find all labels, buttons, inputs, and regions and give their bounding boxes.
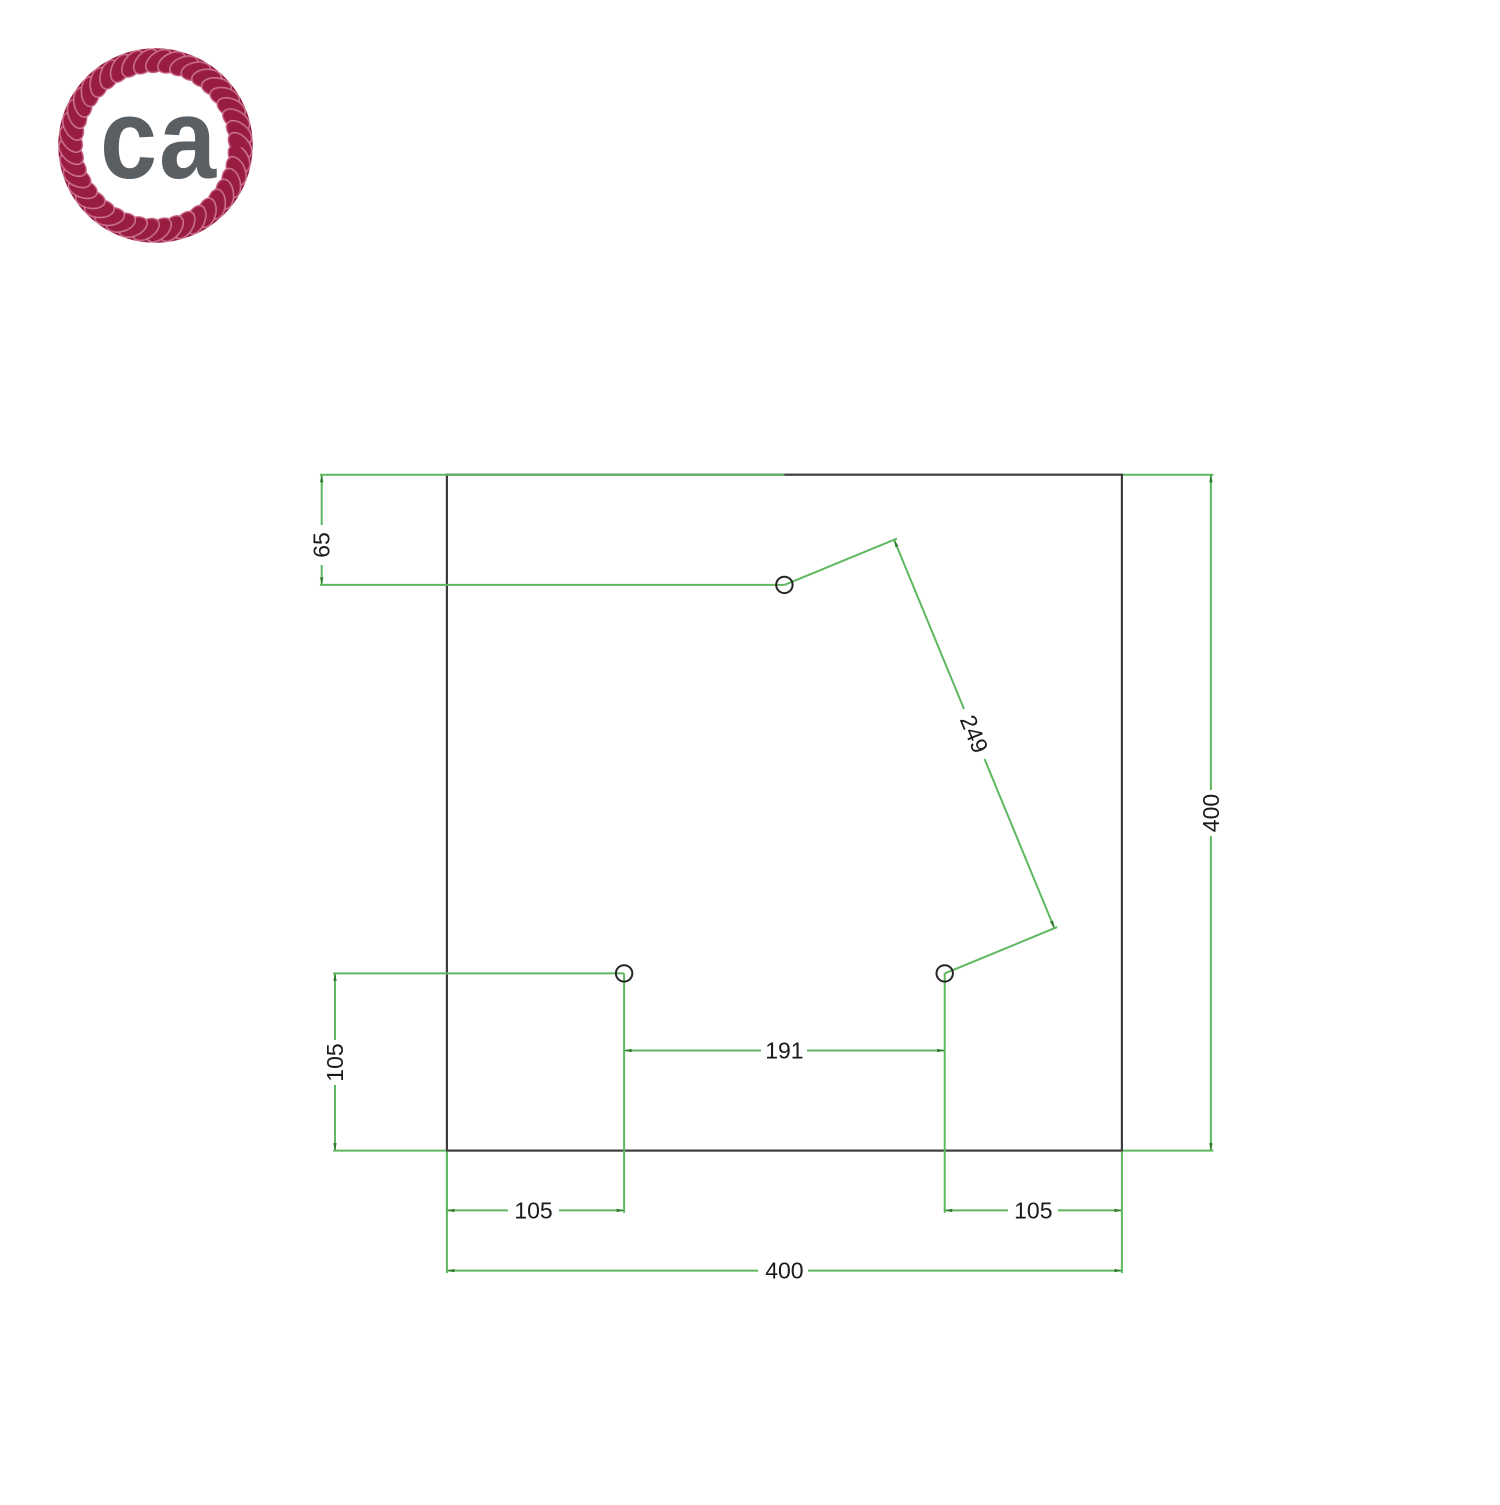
svg-text:65: 65 [309, 532, 335, 558]
svg-text:a: a [159, 75, 217, 202]
svg-text:400: 400 [1198, 794, 1224, 832]
svg-text:400: 400 [765, 1258, 803, 1284]
svg-text:105: 105 [322, 1043, 348, 1081]
svg-text:191: 191 [765, 1038, 803, 1064]
svg-text:105: 105 [514, 1197, 552, 1223]
svg-text:105: 105 [1014, 1197, 1052, 1223]
svg-text:c: c [100, 75, 157, 202]
